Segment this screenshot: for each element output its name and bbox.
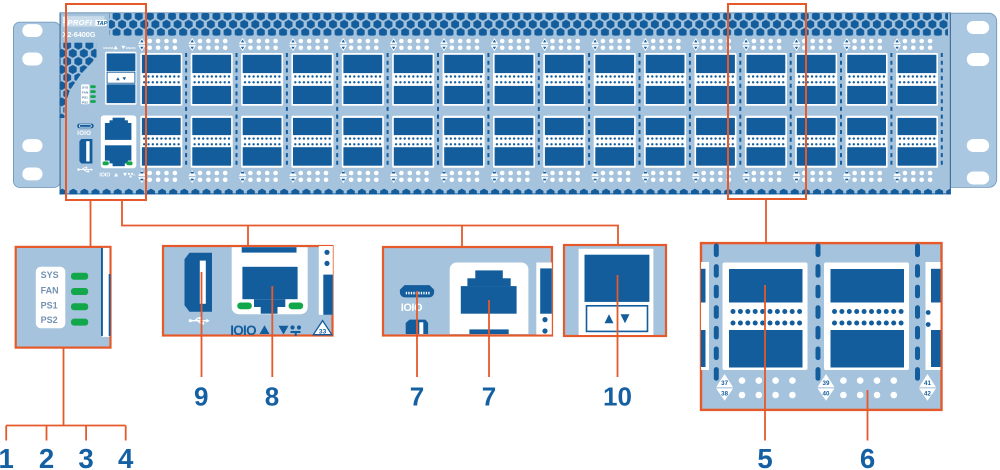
svg-text:6: 6 bbox=[860, 443, 875, 470]
svg-text:7: 7 bbox=[482, 382, 496, 412]
svg-text:PROFI: PROFI bbox=[68, 18, 93, 27]
svg-text:40: 40 bbox=[823, 391, 830, 398]
svg-text:8: 8 bbox=[265, 382, 279, 412]
svg-text:2: 2 bbox=[39, 443, 54, 470]
svg-text:42: 42 bbox=[924, 391, 931, 398]
svg-text:9: 9 bbox=[194, 382, 208, 412]
svg-text:PS2: PS2 bbox=[82, 100, 88, 104]
svg-text:ES1/34: ES1/34 bbox=[126, 46, 136, 50]
svg-text:PS1: PS1 bbox=[82, 95, 88, 99]
svg-text:37: 37 bbox=[721, 380, 728, 387]
svg-text:IOIO: IOIO bbox=[77, 130, 91, 137]
svg-text:38: 38 bbox=[721, 391, 728, 398]
svg-text:IOIO: IOIO bbox=[99, 173, 110, 179]
svg-text:TAP: TAP bbox=[97, 21, 108, 27]
svg-text:PS1: PS1 bbox=[41, 300, 58, 310]
svg-text:IOIO: IOIO bbox=[401, 302, 423, 314]
svg-text:33: 33 bbox=[319, 329, 327, 336]
svg-text:PS2: PS2 bbox=[41, 315, 58, 325]
svg-text:IOIO: IOIO bbox=[230, 323, 256, 338]
svg-text:10: 10 bbox=[603, 382, 632, 412]
svg-text:FAN: FAN bbox=[41, 286, 59, 296]
svg-text:5: 5 bbox=[757, 443, 772, 470]
svg-text:3: 3 bbox=[78, 443, 93, 470]
svg-text:ES1/33: ES1/33 bbox=[103, 46, 113, 50]
svg-text:39: 39 bbox=[823, 380, 830, 387]
svg-text:7: 7 bbox=[410, 382, 424, 412]
svg-text:SYS: SYS bbox=[41, 270, 59, 280]
svg-text:41: 41 bbox=[924, 380, 931, 387]
svg-text:4: 4 bbox=[118, 443, 134, 470]
svg-text:1: 1 bbox=[0, 443, 14, 470]
svg-text:SYS: SYS bbox=[82, 86, 88, 90]
svg-text:FAN: FAN bbox=[82, 90, 89, 94]
svg-text:X2-6400G: X2-6400G bbox=[63, 30, 96, 39]
